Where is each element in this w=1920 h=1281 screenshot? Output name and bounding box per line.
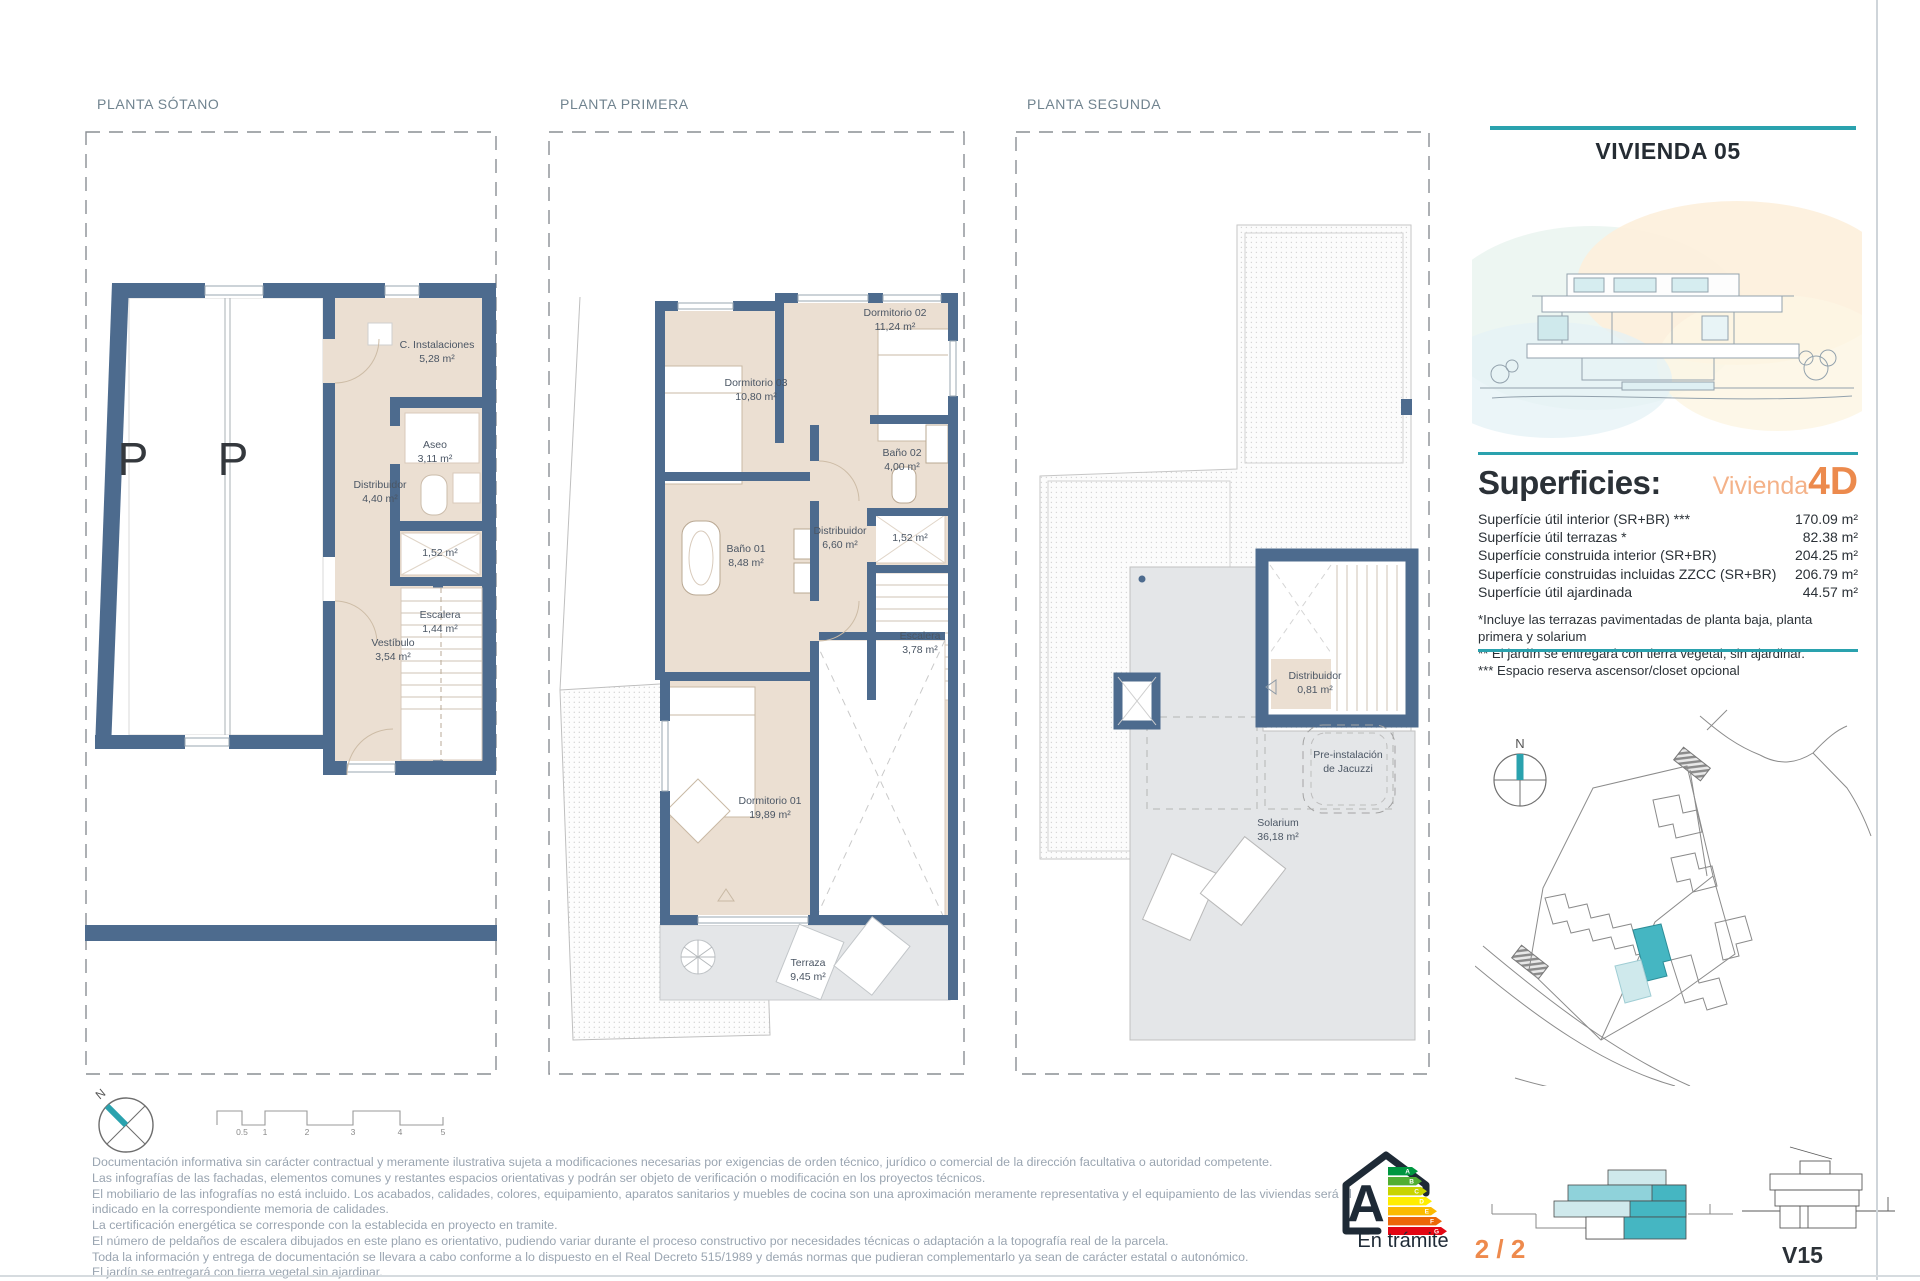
scale-tick: 5 [441, 1127, 446, 1137]
scale-tick: 1 [263, 1127, 268, 1137]
title-rule [1490, 126, 1856, 130]
superficies-row: Superfície útil interior (SR+BR) ***170.… [1478, 510, 1858, 528]
room-name: Pre-instalación [1313, 749, 1382, 763]
legal-disclaimer: Documentación informativa sin carácter c… [92, 1155, 1522, 1281]
disclaimer-line: Toda la información y entrega de documen… [92, 1250, 1522, 1266]
footnote: *Incluye las terrazas pavimentadas de pl… [1478, 612, 1858, 646]
room-name: Escalera [420, 609, 461, 623]
room-name: Aseo [418, 439, 453, 453]
room-area: 1,44 m² [420, 623, 461, 637]
floorplan-segunda-drawing [1015, 131, 1430, 1075]
room-area: 3,11 m² [418, 453, 453, 467]
plan-title-sotano: PLANTA SÓTANO [97, 96, 219, 112]
room-label-bano02: Baño 024,00 m² [882, 447, 921, 475]
room-name: Dormitorio 03 [724, 377, 787, 391]
plan-title-segunda: PLANTA SEGUNDA [1027, 96, 1161, 112]
row-label: Superfície útil ajardinada [1478, 583, 1632, 601]
room-name: Dormitorio 01 [738, 795, 801, 809]
row-value: 170.09 m² [1795, 510, 1858, 528]
room-area: 0,81 m² [1288, 684, 1341, 698]
room-label-dormitorio02: Dormitorio 0211,24 m² [863, 307, 926, 335]
room-area: 3,78 m² [900, 644, 941, 658]
room-name: Baño 01 [726, 543, 765, 557]
room-label-dormitorio01: Dormitorio 0119,89 m² [738, 795, 801, 823]
compass-needle [1517, 754, 1524, 780]
room-area: 1,52 m² [422, 547, 458, 561]
floorplan-primera: Dormitorio 0211,24 m² Dormitorio 0310,80… [548, 131, 965, 1075]
room-area: 8,48 m² [726, 557, 765, 571]
room-area: 10,80 m² [724, 391, 787, 405]
sheet-code: V15 [1782, 1242, 1823, 1269]
floorplan-sotano-drawing [85, 131, 497, 1075]
page-title: VIVIENDA 05 [1478, 138, 1858, 165]
scale-tick: 0.5 [236, 1127, 248, 1137]
house-render [1472, 168, 1862, 446]
room-name: C. Instalaciones [400, 339, 475, 353]
room-name: Distribuidor [1288, 670, 1341, 684]
page-edge-bottom [0, 1275, 1920, 1277]
room-area: 3,54 m² [371, 651, 414, 665]
row-value: 204.25 m² [1795, 546, 1858, 564]
row-label: Superfície útil interior (SR+BR) *** [1478, 510, 1690, 528]
room-label-distribuidor-primera: Distribuidor6,60 m² [813, 525, 866, 553]
footnote: *** Espacio reserva ascensor/closet opci… [1478, 663, 1858, 680]
disclaimer-line: El mobiliario de las infografías no está… [92, 1187, 1522, 1203]
room-label-aseo: Aseo3,11 m² [418, 439, 453, 467]
parking-spot-2: P [218, 432, 249, 486]
compass-needle [107, 1106, 126, 1125]
room-area: 11,24 m² [863, 321, 926, 335]
room-label-escalera-primera: Escalera3,78 m² [900, 630, 941, 658]
room-label-distribuidor-segunda: Distribuidor0,81 m² [1288, 670, 1341, 698]
disclaimer-line: Documentación informativa sin carácter c… [92, 1155, 1522, 1171]
disclaimer-line: El número de peldaños de escalera dibuja… [92, 1234, 1522, 1250]
room-label-solarium: Solarium36,18 m² [1257, 817, 1298, 845]
compass-north-label: N [93, 1086, 109, 1102]
row-value: 44.57 m² [1803, 583, 1858, 601]
disclaimer-line: El jardín se entregará con tierra vegeta… [92, 1265, 1522, 1281]
energy-rating-letter: A [1347, 1175, 1385, 1233]
room-area: 1,52 m² [892, 532, 928, 546]
room-area: 4,00 m² [882, 461, 921, 475]
superficies-row: Superfície útil ajardinada44.57 m² [1478, 583, 1858, 601]
row-label: Superfície útil terrazas * [1478, 528, 1627, 546]
room-name: Vestíbulo [371, 637, 414, 651]
room-name: Distribuidor [813, 525, 866, 539]
vivienda-code: 4D [1808, 460, 1858, 503]
room-name: Baño 02 [882, 447, 921, 461]
energy-bar-letter: E [1425, 1209, 1430, 1216]
superficies-row: Superfície construida interior (SR+BR)20… [1478, 546, 1858, 564]
vivienda-word: Vivienda [1713, 472, 1808, 500]
superficies-row: Superfície construidas incluidas ZZCC (S… [1478, 565, 1858, 583]
superficies-row: Superfície útil terrazas *82.38 m² [1478, 528, 1858, 546]
room-name: Solarium [1257, 817, 1298, 831]
row-value: 206.79 m² [1795, 565, 1858, 583]
room-label-vestibulo: Vestíbulo3,54 m² [371, 637, 414, 665]
superficies-heading: Superficies: [1478, 464, 1661, 502]
vivienda-type: Vivienda4D [1713, 460, 1858, 504]
page-edge-right [1876, 0, 1878, 1280]
room-area: de Jacuzzi [1313, 763, 1382, 777]
row-value: 82.38 m² [1803, 528, 1858, 546]
row-label: Superfície construidas incluidas ZZCC (S… [1478, 565, 1776, 583]
building-section-outline [1742, 1145, 1897, 1250]
floorplan-sotano: P P C. Instalaciones5,28 m² Aseo3,11 m² … [85, 131, 497, 1075]
plan-sheet: PLANTA SÓTANO PLANTA PRIMERA PLANTA SEGU… [0, 0, 1920, 1280]
room-area: 9,45 m² [790, 971, 826, 985]
compass-rose: N [88, 1085, 162, 1159]
room-name: Distribuidor [353, 479, 406, 493]
room-label-distribuidor-sotano: Distribuidor4,40 m² [353, 479, 406, 507]
room-area: 6,60 m² [813, 539, 866, 553]
scale-tick: 3 [351, 1127, 356, 1137]
scale-tick: 4 [398, 1127, 403, 1137]
room-area: 19,89 m² [738, 809, 801, 823]
superficies-panel: Superficies: Vivienda4D Superfície útil … [1478, 460, 1858, 680]
disclaimer-line: Las infografías de las fachadas, element… [92, 1171, 1522, 1187]
room-label-instalaciones: C. Instalaciones5,28 m² [400, 339, 475, 367]
building-section-filled [1490, 1162, 1735, 1267]
room-label-dormitorio03: Dormitorio 0310,80 m² [724, 377, 787, 405]
energy-bar-letter: B [1409, 1179, 1414, 1186]
room-label-terraza: Terraza9,45 m² [790, 957, 826, 985]
row-label: Superfície construida interior (SR+BR) [1478, 546, 1717, 564]
floorplan-segunda: Distribuidor0,81 m² Pre-instalaciónde Ja… [1015, 131, 1430, 1075]
scale-bar: 0.5 1 2 3 4 5 [215, 1095, 455, 1137]
room-area: 36,18 m² [1257, 831, 1298, 845]
energy-bar-letter: F [1430, 1219, 1434, 1226]
room-label-bano01: Baño 018,48 m² [726, 543, 765, 571]
room-label-escalera-sotano: Escalera1,44 m² [420, 609, 461, 637]
room-area: 5,28 m² [400, 353, 475, 367]
plan-title-primera: PLANTA PRIMERA [560, 96, 689, 112]
room-label-jacuzzi: Pre-instalaciónde Jacuzzi [1313, 749, 1382, 777]
room-name: Escalera [900, 630, 941, 644]
room-label-closet-sotano: 1,52 m² [422, 547, 458, 561]
disclaimer-line: La certificación energética se correspon… [92, 1218, 1522, 1234]
room-label-closet-primera: 1,52 m² [892, 532, 928, 546]
scale-tick: 2 [305, 1127, 310, 1137]
energy-bar-letter: D [1419, 1199, 1424, 1206]
room-name: Terraza [790, 957, 826, 971]
energy-certificate-icon: A A B C D E F G [1332, 1143, 1457, 1235]
site-plan: N [1475, 708, 1875, 1086]
disclaimer-line: indicado en la correspondiente memoria d… [92, 1202, 1522, 1218]
superficies-rule-bottom [1478, 649, 1858, 652]
room-name: Dormitorio 02 [863, 307, 926, 321]
superficies-rule-top [1478, 452, 1858, 455]
room-area: 4,40 m² [353, 493, 406, 507]
parking-spot-1: P [118, 432, 149, 486]
superficies-footnotes: *Incluye las terrazas pavimentadas de pl… [1478, 612, 1858, 680]
energy-bar-letter: A [1405, 1169, 1410, 1176]
floorplan-primera-drawing [548, 131, 965, 1075]
energy-bar-letter: C [1414, 1189, 1419, 1196]
compass-north-label: N [1515, 736, 1524, 751]
